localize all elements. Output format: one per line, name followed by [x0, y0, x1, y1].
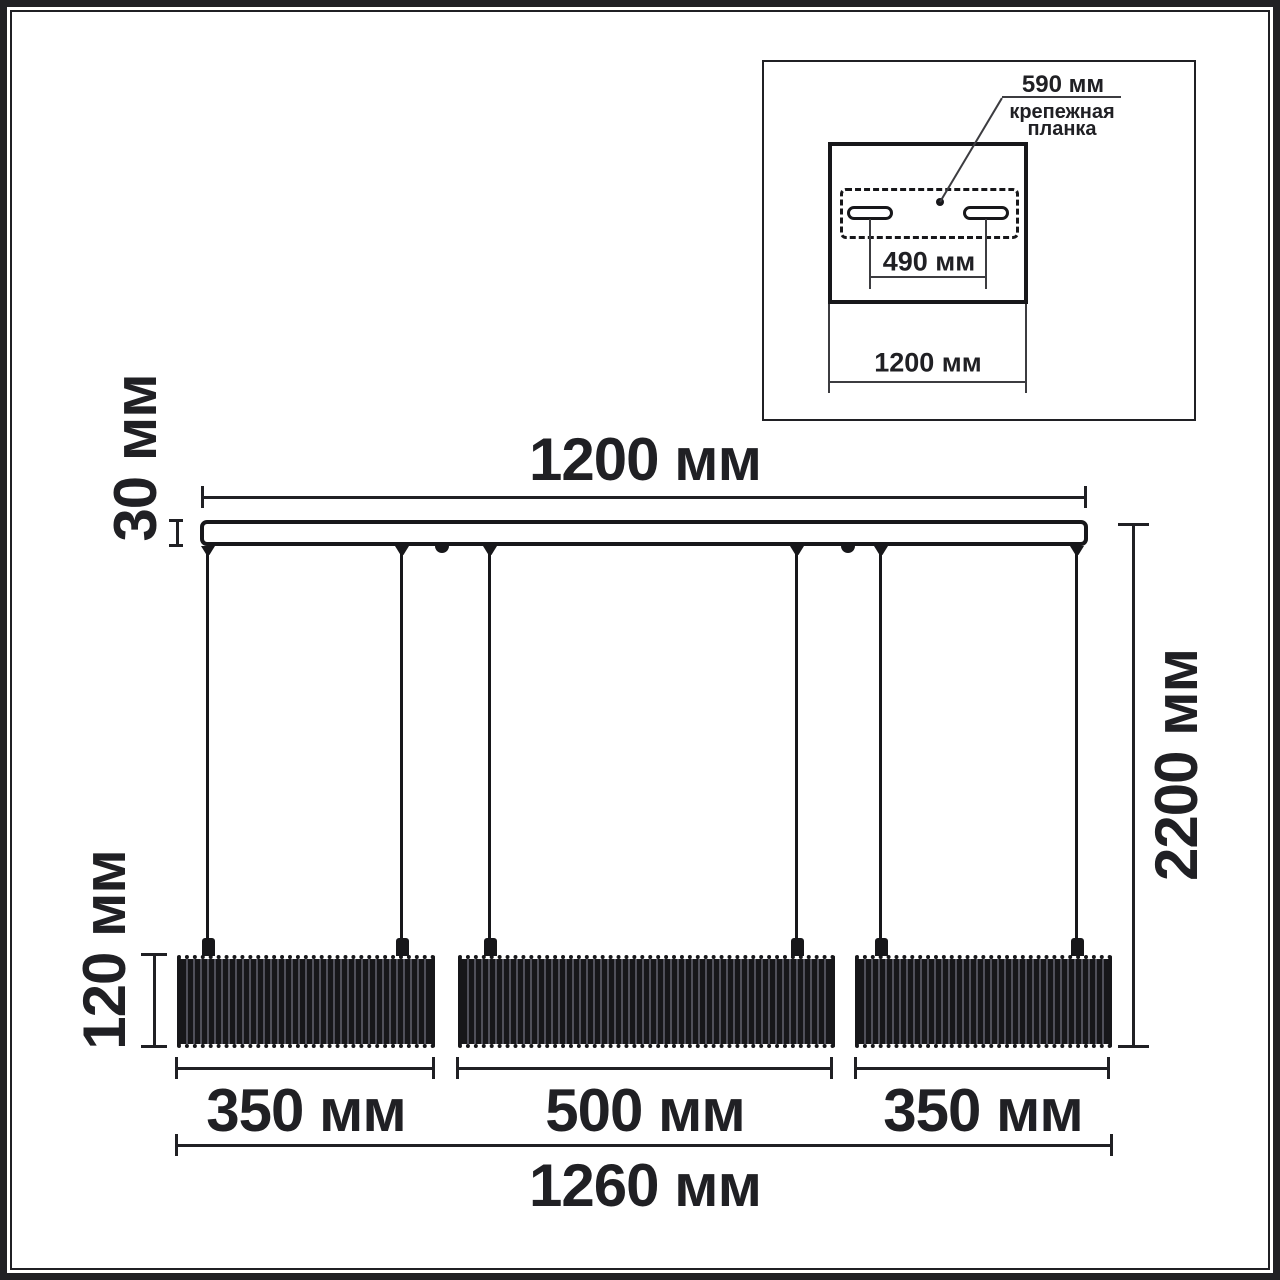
total-drop-label: 2200 мм: [1147, 649, 1207, 881]
cord-mount: [874, 546, 888, 555]
suspension-cord: [795, 546, 798, 939]
overall-width-label: 1260 мм: [529, 1156, 761, 1216]
end-tick: [1107, 1057, 1110, 1079]
end-tick: [169, 519, 183, 522]
lamp-shade-left: [177, 955, 435, 1048]
end-tick: [175, 1134, 178, 1156]
suspension-cord: [1075, 546, 1078, 939]
dimension-line: [1132, 525, 1135, 1048]
end-tick: [169, 544, 183, 547]
cord-grip: [484, 938, 497, 956]
dimension-line: [176, 519, 179, 547]
extension-line: [1025, 304, 1027, 393]
end-tick: [456, 1057, 459, 1079]
cord-mount: [483, 546, 497, 555]
dimension-line: [177, 1144, 1113, 1147]
suspension-cord: [400, 546, 403, 939]
cord-mount: [790, 546, 804, 555]
rail-width-label: 1200 мм: [529, 430, 761, 490]
end-tick: [432, 1057, 435, 1079]
shade-height-label: 120 мм: [75, 850, 135, 1050]
shade-center-width-label: 500 мм: [545, 1081, 745, 1141]
cord-grip: [396, 938, 409, 956]
suspension-cord: [879, 546, 882, 939]
mounting-slot-right: [963, 206, 1009, 220]
shade-left-width-label: 350 мм: [206, 1081, 406, 1141]
ceiling-rail: [200, 520, 1088, 546]
canopy-width-label: 1200 мм: [874, 350, 982, 377]
plate-width-label: 590 мм: [1022, 73, 1104, 97]
suspension-cord: [488, 546, 491, 939]
mounting-slot-left: [847, 206, 893, 220]
end-tick: [1084, 486, 1087, 508]
extension-line: [985, 219, 987, 289]
lamp-shade-center: [458, 955, 835, 1048]
mounting-plate-caption: крепежная планка: [1009, 104, 1114, 138]
end-tick: [1110, 1134, 1113, 1156]
end-tick: [141, 953, 167, 956]
cord-grip: [202, 938, 215, 956]
dimension-line: [458, 1067, 833, 1070]
dimension-line: [829, 381, 1027, 383]
end-tick: [1118, 1045, 1149, 1048]
end-tick: [141, 1045, 167, 1048]
mounting-plate-caption-line2: планка: [1009, 121, 1114, 138]
extension-line: [869, 219, 871, 289]
end-tick: [175, 1057, 178, 1079]
dimension-line: [856, 1067, 1110, 1070]
cord-mount: [201, 546, 215, 555]
lamp-shade-right: [855, 955, 1112, 1048]
cord-grip: [1071, 938, 1084, 956]
slot-spacing-label: 490 мм: [883, 249, 976, 276]
dimension-line: [153, 955, 156, 1048]
wire-outlet-dot: [435, 546, 449, 553]
end-tick: [854, 1057, 857, 1079]
end-tick: [201, 486, 204, 508]
extension-line: [828, 304, 830, 393]
dimension-line: [203, 496, 1086, 499]
cord-grip: [791, 938, 804, 956]
rail-thickness-label: 30 мм: [106, 374, 166, 541]
shade-right-width-label: 350 мм: [883, 1081, 1083, 1141]
dimension-line: [177, 1067, 435, 1070]
wire-outlet-dot: [841, 546, 855, 553]
cord-mount: [395, 546, 409, 555]
technical-drawing: 590 мм крепежная планка 490 мм 1200 мм 1…: [0, 0, 1280, 1280]
end-tick: [830, 1057, 833, 1079]
end-tick: [1118, 523, 1149, 526]
suspension-cord: [206, 546, 209, 939]
cord-mount: [1070, 546, 1084, 555]
cord-grip: [875, 938, 888, 956]
